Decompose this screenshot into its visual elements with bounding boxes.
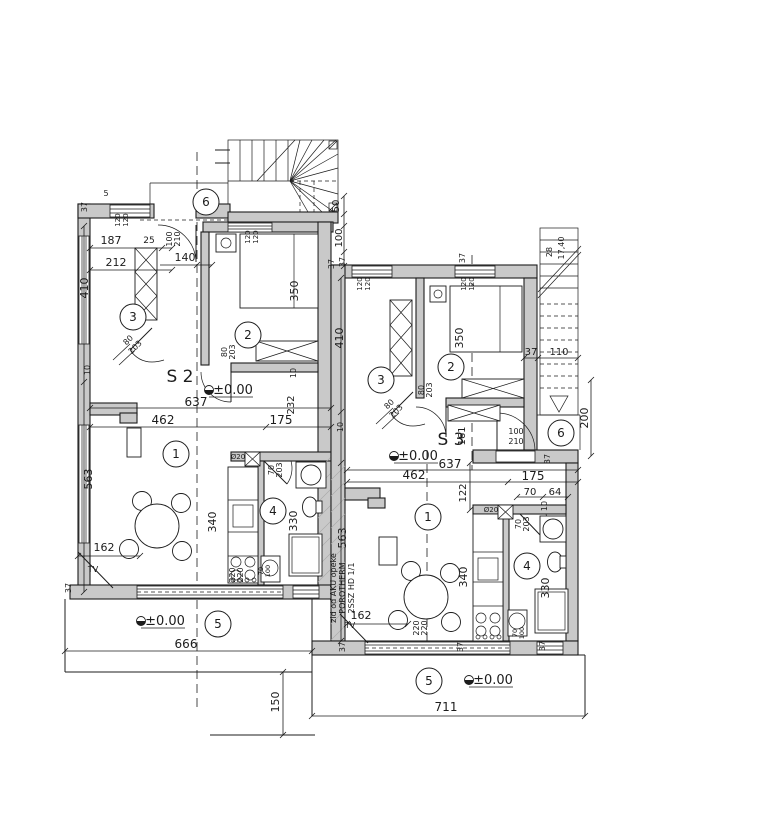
- door-size-label: 210: [173, 231, 182, 246]
- tv-label: TV: [87, 565, 99, 574]
- floor-plan-page: 28 17,40: [0, 0, 760, 813]
- dim-label: 37: [543, 454, 552, 464]
- dim-label: 70: [524, 487, 537, 498]
- dim-label: 100: [334, 228, 345, 247]
- elevation-label: ±0.00: [213, 383, 253, 398]
- wall-note: POROTHERM: [338, 562, 347, 613]
- window-size-label: 120: [244, 230, 252, 243]
- dim-label: 711: [435, 700, 458, 714]
- floor-plan: 28 17,40: [0, 0, 760, 813]
- dim-label: 340: [206, 512, 219, 533]
- dim-label: 330: [287, 511, 300, 532]
- door-size-label: 210: [508, 437, 523, 446]
- dim-label: 563: [82, 469, 95, 490]
- window-size-label: 120: [460, 277, 468, 290]
- dim-label: 37: [338, 642, 347, 652]
- door-size-label: 220: [236, 567, 245, 582]
- dim-label: 122: [458, 483, 469, 502]
- dim-label: 232: [286, 395, 297, 414]
- room-number: 1: [424, 510, 432, 524]
- dim-label: 10: [83, 365, 92, 375]
- staircase-top: [150, 140, 338, 212]
- dim-label: 5: [103, 189, 108, 198]
- dim-label: 150: [269, 692, 282, 713]
- room-number: 2: [244, 328, 252, 342]
- room-number: 3: [129, 310, 137, 324]
- tv-label: TV: [344, 621, 356, 630]
- dim-label: 212: [106, 256, 127, 269]
- dim-label: 37: [80, 202, 89, 212]
- dim-label: 140: [175, 251, 196, 264]
- dim-label: 37: [538, 641, 547, 651]
- window-size-label: 120: [468, 277, 476, 290]
- room-number: 1: [172, 447, 180, 461]
- dim-label: 175: [522, 469, 545, 483]
- pipe-label: Ø20: [231, 453, 245, 461]
- dim-label: 340: [457, 567, 470, 588]
- dim-label: 187: [101, 234, 122, 247]
- wall-note: zid od AKU opeke: [329, 553, 338, 623]
- dim-label: 410: [78, 278, 91, 299]
- dim-label: 637: [439, 457, 462, 471]
- room-number: 4: [523, 559, 531, 573]
- dim-label: 37: [64, 583, 73, 593]
- dim-label: 37: [327, 259, 336, 269]
- door-size-label: 220: [420, 620, 429, 635]
- window-size-label: 100: [264, 565, 272, 577]
- dim-label: 37: [456, 642, 465, 652]
- room-number: 2: [447, 360, 455, 374]
- dim-label: 10: [336, 422, 345, 432]
- window-size-label: 120: [114, 213, 122, 226]
- dim-label: 462: [152, 413, 175, 427]
- door-size-label: 203: [425, 382, 434, 397]
- dim-label: 563: [336, 528, 349, 549]
- elevation-label: ±0.00: [145, 614, 185, 629]
- dim-label: 37: [525, 347, 538, 358]
- dim-label: 200: [578, 408, 591, 429]
- dim-label: 161: [457, 426, 468, 445]
- room-number: 6: [202, 195, 210, 209]
- dim-label: 462: [403, 468, 426, 482]
- window-size-label: 120: [122, 213, 130, 226]
- dim-label: 637: [185, 395, 208, 409]
- room-number: 6: [557, 426, 565, 440]
- pipe-label: Ø20: [484, 506, 498, 514]
- room-number: 5: [425, 674, 433, 688]
- window-size-label: 120: [364, 277, 372, 290]
- dim-label: 162: [94, 541, 115, 554]
- staircase-right: 28 17,40: [537, 228, 581, 450]
- room-number: 5: [214, 617, 222, 631]
- dim-label: 10: [289, 368, 298, 378]
- room-number: 4: [269, 504, 277, 518]
- dim-label: 350: [453, 328, 466, 349]
- door-size-label: 203: [228, 344, 237, 359]
- dim-label: 37: [458, 253, 467, 263]
- window-size-label: 120: [252, 230, 260, 243]
- dim-label: 110: [549, 347, 568, 358]
- dim-label: 666: [175, 637, 198, 651]
- dim-label: 330: [539, 578, 552, 599]
- dim-label: 350: [288, 281, 301, 302]
- elevation-label: ±0.00: [398, 449, 438, 464]
- dim-label: 25: [143, 236, 154, 246]
- window-size-label: 120: [356, 277, 364, 290]
- dim-label: 50: [331, 200, 342, 213]
- elevation-label: ±0.00: [473, 673, 513, 688]
- room-number: 3: [377, 373, 385, 387]
- dim-label: 64: [549, 487, 562, 498]
- door-size-label: 203: [275, 462, 284, 477]
- door-size-label: 100: [508, 427, 523, 436]
- window-size-label: 100: [518, 627, 526, 639]
- dim-label: 37: [338, 257, 347, 267]
- dim-label: 410: [333, 328, 346, 349]
- stair-dim-label: 28: [545, 247, 554, 257]
- unit-label: S 2: [166, 367, 193, 387]
- dim-label: 10: [540, 501, 549, 511]
- door-size-label: 203: [522, 516, 531, 531]
- stair-dim-label: 17,40: [557, 237, 566, 260]
- wall-note: 2SSZ HD 1/1: [347, 563, 356, 614]
